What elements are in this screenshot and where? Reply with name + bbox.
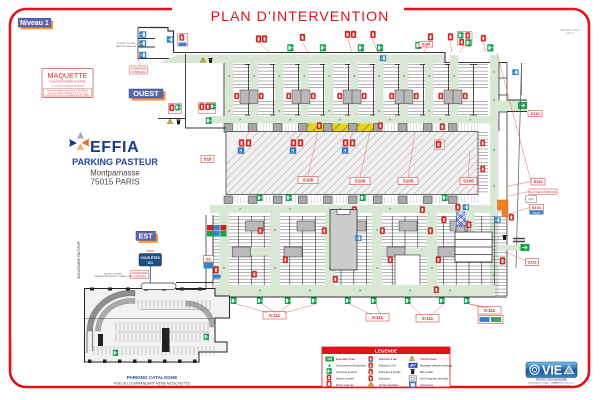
svg-text:PARKING PASTEUR: PARKING PASTEUR xyxy=(72,157,158,167)
svg-text:Evacuation finale: Evacuation finale xyxy=(336,358,356,361)
svg-text:S105: S105 xyxy=(303,178,314,183)
svg-text:S105: S105 xyxy=(463,179,474,184)
svg-text:S-111: S-111 xyxy=(422,316,434,321)
svg-text:LEGENDE: LEGENDE xyxy=(375,348,397,353)
svg-text:S-111: S-111 xyxy=(372,315,384,320)
svg-text:OUEST: OUEST xyxy=(133,89,159,98)
svg-text:PARKING CATALOGNE: PARKING CATALOGNE xyxy=(127,375,178,380)
svg-text:RUE DU COMMANDANT RENE MOUCHOT: RUE DU COMMANDANT RENE MOUCHOTTE xyxy=(114,382,191,386)
svg-text:☐ acceptée 01/03/209 01/03: ☐ acceptée 01/03/209 01/03/209 xyxy=(51,85,84,88)
svg-text:S110: S110 xyxy=(530,111,540,116)
svg-text:Recharge véhicule électrique: Recharge véhicule électrique xyxy=(420,365,453,368)
svg-text:PARKING PASTEUR: PARKING PASTEUR xyxy=(116,45,137,48)
svg-text:Extincteur CO2: Extincteur CO2 xyxy=(379,365,397,368)
svg-text:A NOUS RETOURNER ACCEPTEE: A NOUS RETOURNER ACCEPTEE xyxy=(49,81,86,84)
svg-text:Bac à sable: Bac à sable xyxy=(420,371,434,374)
svg-text:SORTIE VOITURE: SORTIE VOITURE xyxy=(117,43,136,45)
svg-text:Arrêt d'urgence électrique: Arrêt d'urgence électrique xyxy=(420,377,449,380)
svg-text:Porte coupe-feu: Porte coupe-feu xyxy=(336,384,354,387)
svg-text:ACC: ACC xyxy=(528,197,534,201)
svg-text:EFFIA: EFFIA xyxy=(90,139,139,156)
svg-text:Ascenseurs: Ascenseurs xyxy=(420,384,434,387)
svg-text:semaines les erreurs non corri: semaines les erreurs non corrigées par d… xyxy=(46,94,89,97)
svg-text:Tel 01 46 07 84 85 Port. 06: Tel 01 46 07 84 85 Port. 06 24 06 45 83 xyxy=(532,385,571,388)
svg-text:ICI: ICI xyxy=(148,260,153,265)
svg-text:↑: ↑ xyxy=(125,39,126,42)
svg-text:Ouverture de porte: Ouverture de porte xyxy=(336,371,358,374)
svg-text:↓: ↓ xyxy=(112,270,113,273)
svg-text:♿: ♿ xyxy=(290,147,296,153)
svg-text:S105: S105 xyxy=(355,179,366,184)
svg-text:OBKW: OBKW xyxy=(146,249,154,253)
svg-text:Cheminement d'évacuation: Cheminement d'évacuation xyxy=(336,365,367,368)
svg-text:75015 PARIS: 75015 PARIS xyxy=(90,178,140,187)
svg-text:Montparnasse: Montparnasse xyxy=(90,169,139,178)
svg-text:Transformateur: Transformateur xyxy=(420,358,437,361)
svg-text:Extincteur à poudre: Extincteur à poudre xyxy=(379,371,401,374)
svg-text:ACCUEIL PARKING: ACCUEIL PARKING xyxy=(529,190,557,194)
svg-text:S111: S111 xyxy=(528,260,538,265)
svg-text:♿: ♿ xyxy=(342,147,348,153)
svg-text:PARKING PASTEUR ET CATALOGNE: PARKING PASTEUR ET CATALOGNE xyxy=(94,275,132,278)
svg-text:Za Fontaine la Guyon - BRAINVI: Za Fontaine la Guyon - BRAINVILLE www.vi… xyxy=(528,382,574,385)
svg-text:BOULEVARD PASTEUR: BOULEVARD PASTEUR xyxy=(77,241,81,279)
svg-text:EST: EST xyxy=(139,232,154,241)
svg-text:Conforme à la norme NF S60-303: Conforme à la norme NF S60-303 xyxy=(11,337,14,372)
svg-text:PLAN D’INTERVENTION: PLAN D’INTERVENTION xyxy=(211,9,390,25)
svg-text:POMPIERS: POMPIERS xyxy=(133,274,147,278)
svg-text:SAUR: SAUR xyxy=(533,211,541,215)
svg-text:S105: S105 xyxy=(403,179,414,184)
svg-text:Extincteur: Extincteur xyxy=(379,377,390,380)
svg-text:♿: ♿ xyxy=(238,147,244,153)
svg-text:Arrivée électrique: Arrivée électrique xyxy=(379,384,399,387)
svg-text:Extincteur à eau: Extincteur à eau xyxy=(379,358,398,361)
svg-text:S1: S1 xyxy=(206,257,212,262)
svg-text:POMPIERS: POMPIERS xyxy=(132,70,146,74)
svg-text:S-111: S-111 xyxy=(484,308,496,313)
svg-text:MAQUETTE: MAQUETTE xyxy=(48,71,88,80)
svg-text:ACCES VOITURE: ACCES VOITURE xyxy=(104,272,122,275)
svg-text:Alarme Incendie: Alarme Incendie xyxy=(336,377,355,380)
svg-text:PROTECTION INCENDIE: PROTECTION INCENDIE xyxy=(536,378,567,382)
svg-text:S10: S10 xyxy=(203,157,212,162)
svg-text:S-111: S-111 xyxy=(269,313,281,318)
svg-text:S110: S110 xyxy=(533,179,543,184)
svg-text:IND.07: IND.07 xyxy=(566,32,574,35)
svg-text:VIE: VIE xyxy=(542,364,562,378)
svg-text:S101: S101 xyxy=(532,205,542,210)
svg-text:Niveau 1: Niveau 1 xyxy=(20,20,49,27)
